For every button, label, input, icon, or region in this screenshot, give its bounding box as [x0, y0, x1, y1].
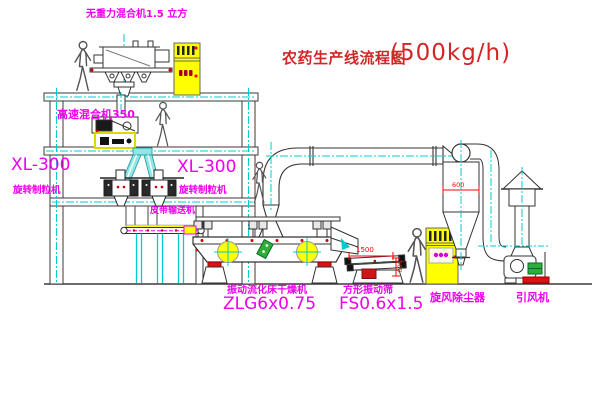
cyclone-diameter-dimension: 600	[452, 182, 464, 189]
high-speed-mixer-label: 高速混合机350	[57, 109, 135, 120]
granulator-mid-model-label: XL-300	[177, 159, 236, 176]
gravity-mixer	[90, 34, 172, 100]
granulator-left-name-label: 旋转制粒机	[13, 186, 61, 196]
process-flow-diagram: 无重力混合机1.5 立方 农药生产线流程图 (500kg/h) 高速混合机350…	[0, 0, 600, 403]
mixer-discharge-funnels	[105, 72, 151, 82]
cabinet-knobs	[179, 70, 193, 76]
diagram-title: 农药生产线流程图	[282, 51, 406, 66]
conveyor-legs	[137, 234, 184, 284]
diagram-title-capacity: (500kg/h)	[390, 42, 511, 65]
control-cabinet-top	[174, 43, 200, 95]
fan-base	[523, 277, 549, 283]
cyclone-label: 旋风除尘器	[430, 292, 485, 303]
exhaust-stack	[478, 167, 550, 252]
air-duct	[259, 142, 456, 237]
dryer-model-label: ZLG6x0.75	[223, 296, 316, 313]
sieve-model-label: FS0.6x1.5	[339, 296, 423, 313]
sieve-height-dimension: 500	[396, 260, 403, 272]
cabinet-knobs	[434, 253, 448, 257]
fan-label: 引风机	[516, 292, 549, 303]
worker-figure	[75, 42, 90, 91]
induced-draft-fan	[504, 247, 549, 283]
worker-figure	[156, 102, 170, 145]
vibrating-sieve	[331, 227, 406, 283]
gravity-mixer-label: 无重力混合机1.5 立方	[86, 10, 187, 20]
worker-figure	[408, 229, 425, 282]
fluid-bed-dryer	[184, 217, 346, 283]
sieve-length-dimension: 1500	[356, 247, 374, 254]
granulator-mid-name-label: 旋转制粒机	[179, 186, 227, 196]
granulator-left-model-label: XL-300	[11, 157, 70, 174]
spring-hangers	[194, 221, 331, 237]
belt-conveyor-label: 皮带输送机	[150, 207, 195, 216]
